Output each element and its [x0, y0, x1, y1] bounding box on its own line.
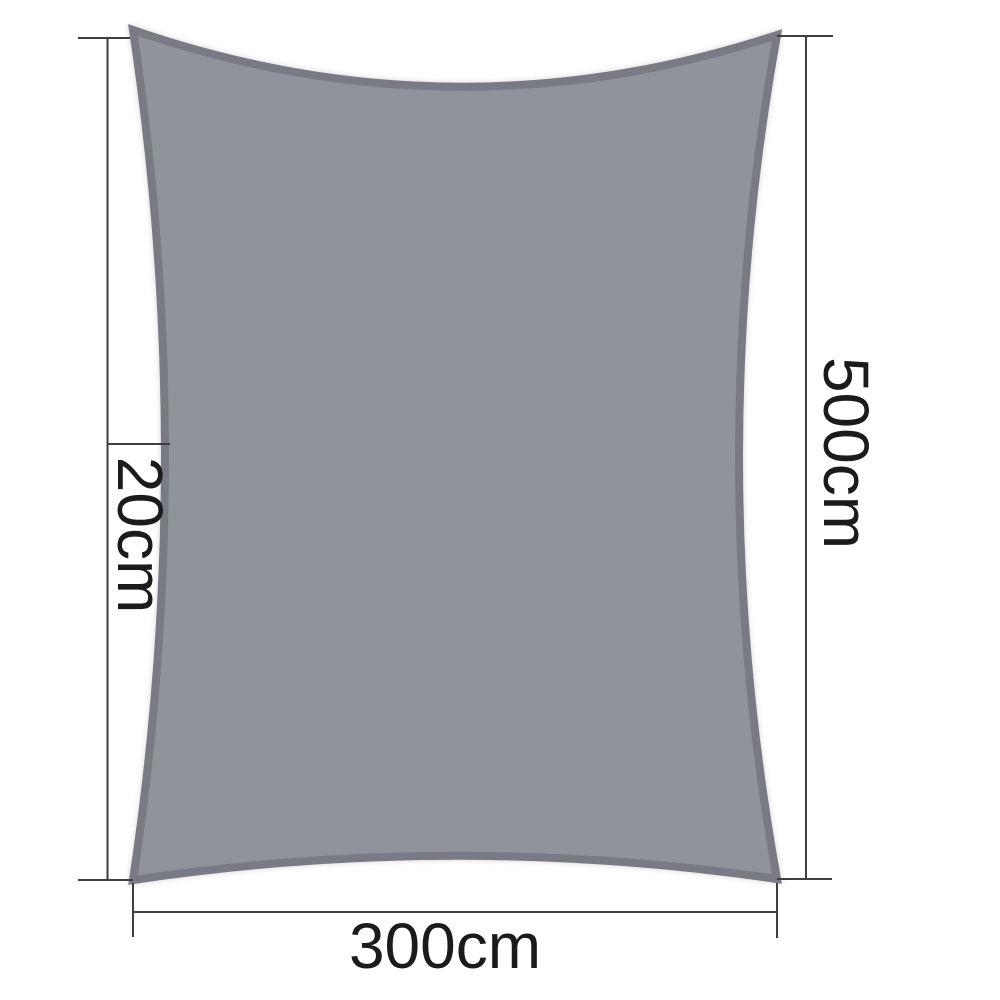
bottom-dimension-label: 300cm: [349, 914, 541, 978]
left-dimension-label: 20cm: [108, 457, 172, 614]
shade-sail-dimension-diagram: 20cm 500cm 300cm: [0, 0, 1000, 1000]
right-dimension-label: 500cm: [814, 357, 878, 549]
sail-shape: [133, 30, 777, 880]
